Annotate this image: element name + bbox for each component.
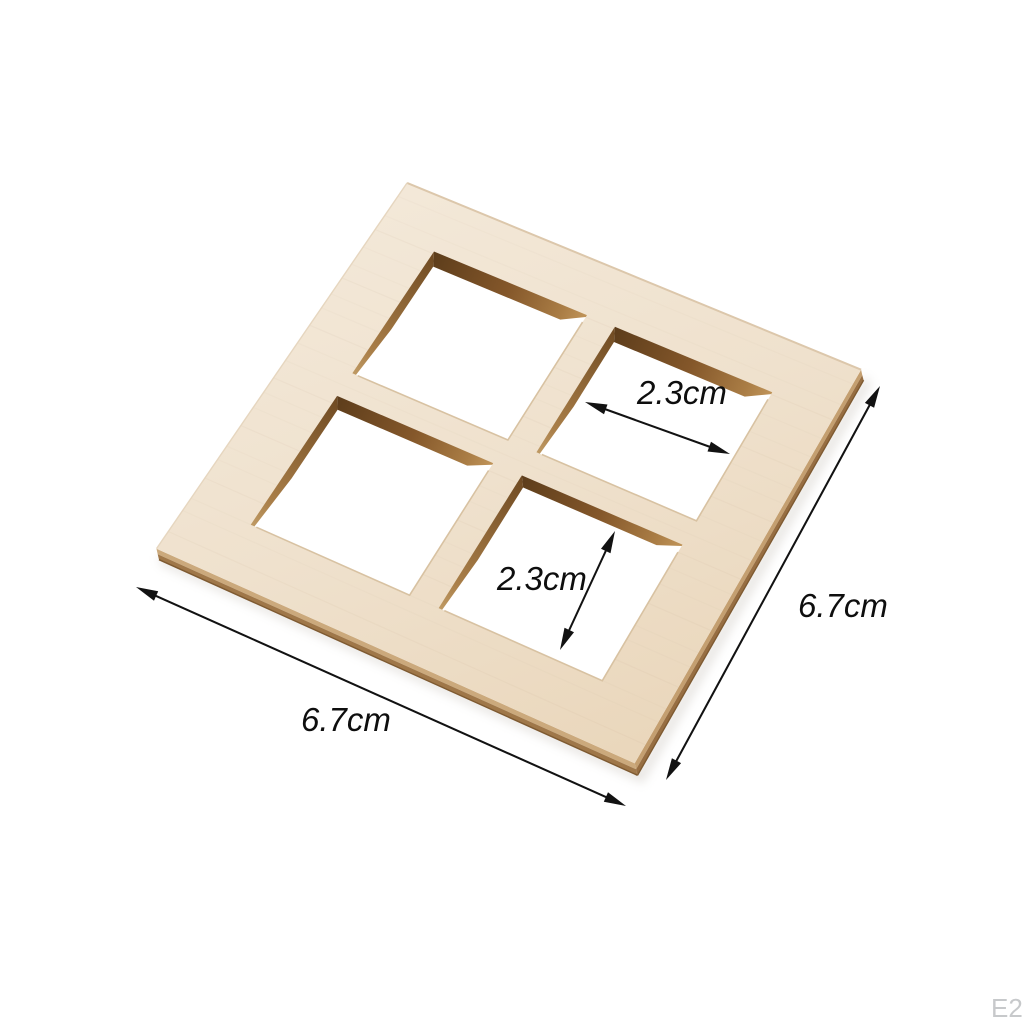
svg-text:2.3cm: 2.3cm: [496, 560, 587, 597]
svg-text:2.3cm: 2.3cm: [636, 374, 727, 411]
svg-text:6.7cm: 6.7cm: [798, 587, 888, 624]
svg-text:E2: E2: [991, 993, 1023, 1023]
svg-text:6.7cm: 6.7cm: [301, 701, 391, 738]
